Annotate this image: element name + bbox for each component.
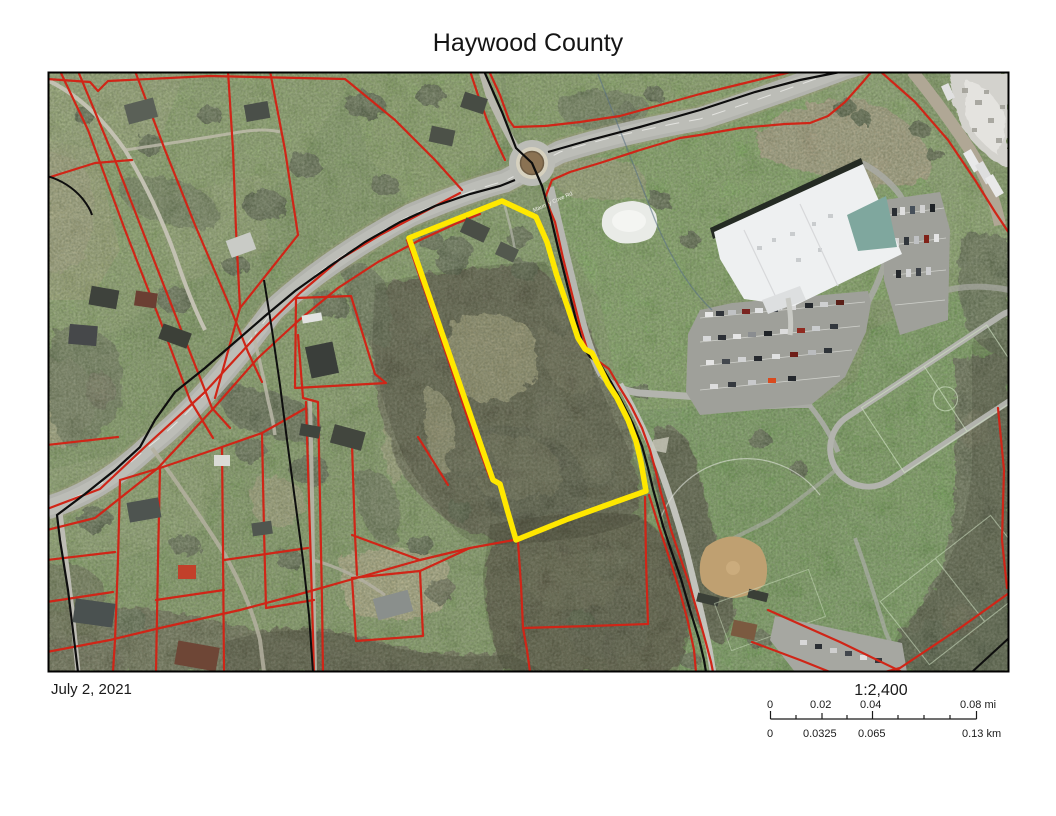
svg-text:0.0325: 0.0325 (803, 728, 837, 740)
svg-text:0.08 mi: 0.08 mi (960, 699, 996, 711)
svg-text:0.13 km: 0.13 km (962, 728, 1001, 740)
svg-text:0.065: 0.065 (858, 728, 886, 740)
svg-text:0.04: 0.04 (860, 699, 881, 711)
svg-text:0.02: 0.02 (810, 699, 831, 711)
svg-text:0: 0 (767, 699, 773, 711)
svg-text:0: 0 (767, 728, 773, 740)
